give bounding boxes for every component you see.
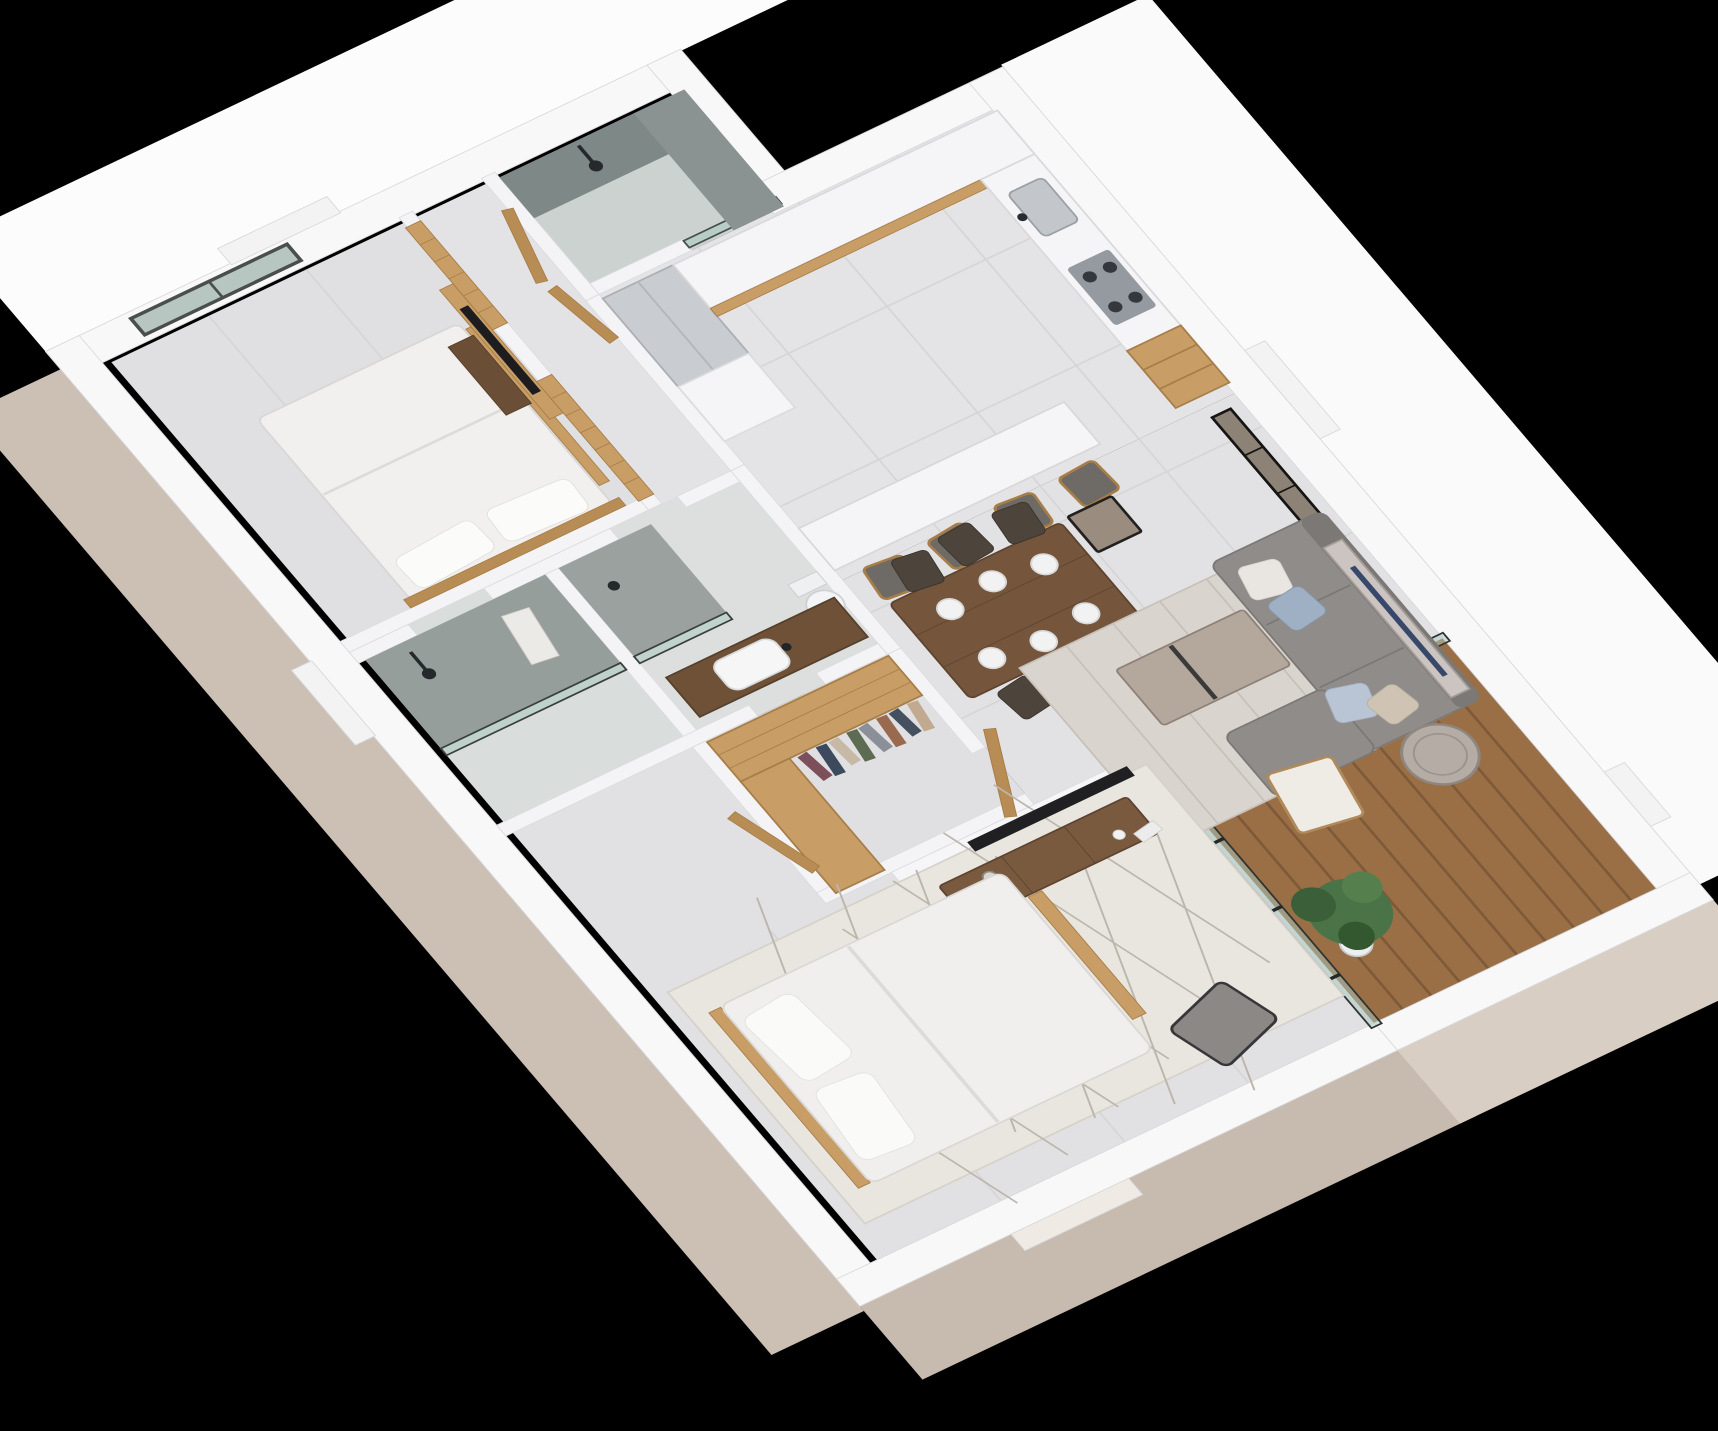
apartment-3d-floor-plan	[0, 0, 1718, 1431]
floor-plan-svg	[0, 0, 1718, 1431]
